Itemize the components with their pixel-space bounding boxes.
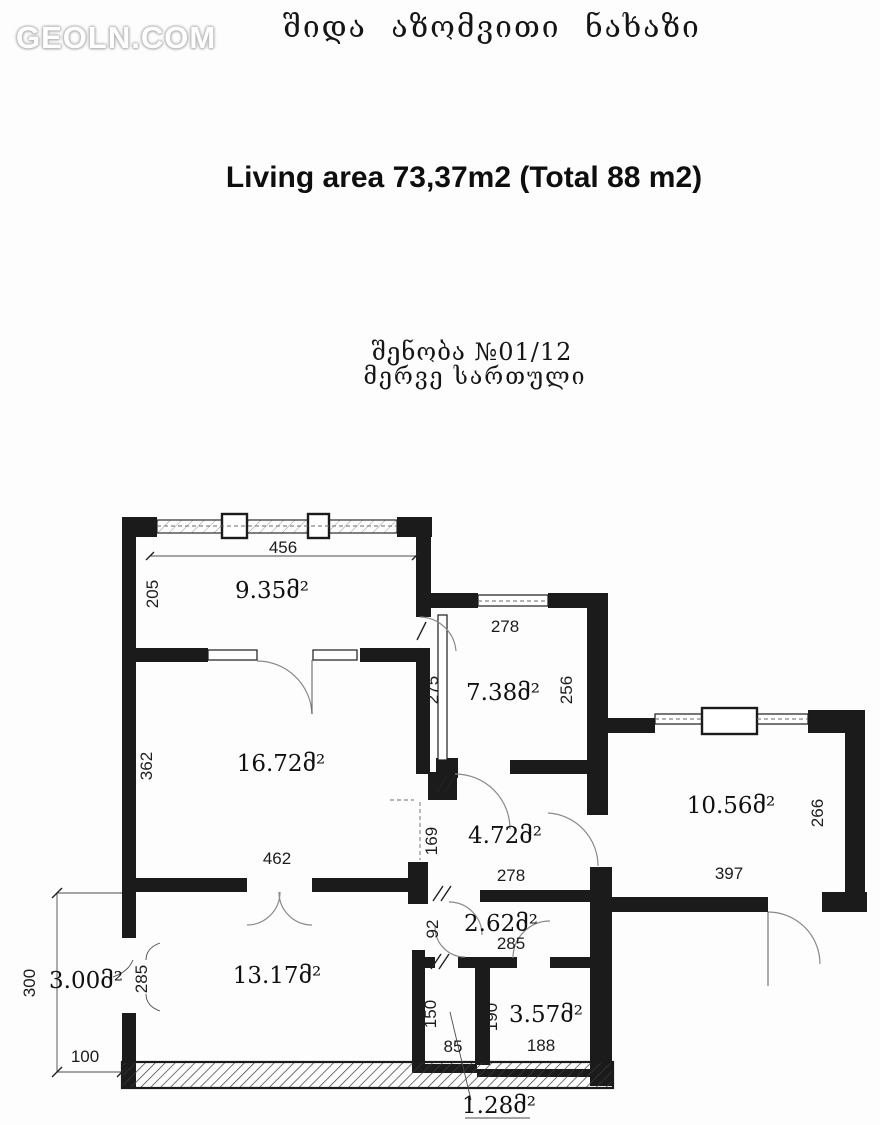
dimension-456: 456 (269, 538, 297, 557)
leader-curve (146, 943, 160, 960)
wall (408, 862, 428, 904)
wall (136, 648, 208, 662)
cased-opening (313, 650, 357, 660)
door-arc (548, 813, 598, 866)
floor-plan-page: GEOLN.COM შიდა აზომვითი ნახაზი Living ar… (0, 0, 880, 1125)
dimension-275: 275 (423, 676, 442, 704)
dimension-256: 256 (557, 676, 576, 704)
dimension-188: 188 (527, 1036, 555, 1055)
bottom-exterior-wall (122, 1062, 613, 1088)
wall (490, 957, 517, 968)
wall (587, 718, 655, 733)
room-area-label-472: 4.72მ² (468, 823, 542, 849)
tick-marks (52, 552, 455, 1077)
dimension-lines (57, 526, 808, 1118)
wall (458, 957, 475, 968)
dimension-100: 100 (71, 1047, 99, 1066)
opening-tick (439, 954, 449, 969)
dimension-462: 462 (263, 849, 291, 868)
dimension-278-top: 278 (491, 617, 519, 636)
wall (480, 890, 590, 902)
top-exterior-wall-band (157, 520, 397, 533)
wall (510, 760, 587, 774)
room-area-label-300: 3.00მ² (49, 968, 123, 994)
door-arc (257, 661, 312, 714)
room-area-label-1672: 16.72მ² (237, 751, 326, 777)
wall (590, 867, 612, 1086)
dimension-169: 169 (422, 827, 441, 855)
wall (136, 878, 247, 892)
dimension-362: 362 (137, 752, 156, 780)
dimension-300: 300 (20, 969, 39, 997)
wall (122, 517, 136, 938)
dimension-92: 92 (423, 920, 442, 939)
dimension-150: 150 (421, 1000, 440, 1028)
wall (428, 772, 457, 800)
wall (822, 892, 867, 912)
room-area-label-738: 7.38მ² (466, 680, 540, 706)
dimension-85: 85 (444, 1037, 463, 1056)
cased-opening (208, 650, 257, 660)
room-area-label-1056: 10.56მ² (687, 793, 776, 819)
door-arc (455, 774, 510, 829)
wall (587, 593, 608, 815)
room-area-label-357: 3.57მ² (509, 1002, 583, 1028)
room-area-label-1317: 13.17მ² (233, 963, 322, 989)
dimension-397: 397 (715, 864, 743, 883)
leader-curve (146, 994, 160, 1011)
floor-plan-drawing: 9.35მ² 7.38მ² 16.72მ² 10.56მ² 4.72მ² 2.6… (0, 0, 880, 1125)
room-area-label-935: 9.35მ² (235, 578, 309, 604)
double-door-arc (279, 892, 312, 925)
door-leaf (417, 622, 426, 640)
dimension-285-balcony: 285 (132, 965, 151, 993)
wall (612, 897, 768, 912)
window (702, 708, 757, 734)
opening-tick (441, 886, 451, 901)
wall (416, 648, 430, 774)
wall (845, 710, 865, 894)
wall (550, 957, 592, 968)
window (478, 595, 548, 606)
windows (208, 514, 808, 760)
dimension-266: 266 (808, 799, 827, 827)
wall (428, 593, 478, 608)
opening-tick (433, 886, 443, 901)
door-arc (768, 912, 820, 964)
room-area-label-128: 1.28მ² (462, 1093, 536, 1119)
dimension-278-mid: 278 (497, 866, 525, 885)
double-door-arc (247, 892, 280, 925)
dimension-205: 205 (143, 580, 162, 608)
dimension-285-hall: 285 (497, 934, 525, 953)
wall (312, 878, 408, 892)
dimension-190: 190 (482, 1003, 501, 1031)
